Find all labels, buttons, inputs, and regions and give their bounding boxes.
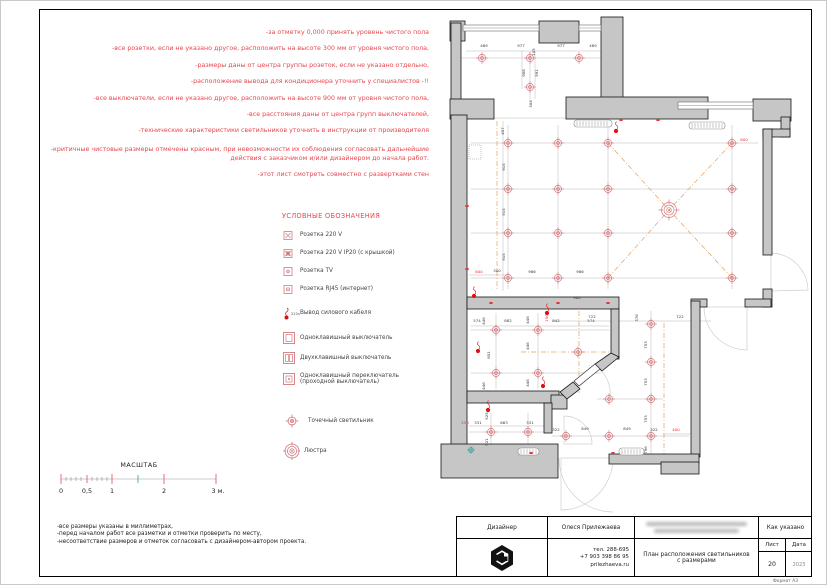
legend-title: УСЛОВНЫЕ ОБОЗНАЧЕНИЯ — [282, 212, 442, 220]
client-info-blurred — [634, 517, 758, 538]
switch-2gang-icon — [282, 351, 300, 365]
legend-item: Розетка 220 V IP20 (с крышкой) — [282, 248, 442, 259]
scale-bar: МАСШТАБ 0 0,5 1 2 3 м. — [51, 461, 231, 506]
contact-mobile: +7 903 398 86 95 — [580, 554, 629, 561]
note-line: -все расстояния даны от центра групп вык… — [29, 107, 429, 123]
legend-item: Розетка TV — [282, 266, 442, 277]
contact-site[interactable]: prilezhaeva.ru — [590, 562, 629, 569]
scale-value: Как указано — [758, 517, 812, 538]
scale-label: 2 — [162, 487, 166, 495]
legend: УСЛОВНЫЕ ОБОЗНАЧЕНИЯ Розетка 220 V Розет… — [282, 212, 442, 461]
drawing-title: План расположения светильников с размера… — [634, 538, 758, 577]
socket-ip20-icon — [282, 248, 300, 259]
blurred-text-line — [646, 522, 748, 526]
note-line: -критичные чистовые размеры отмечены кра… — [29, 145, 429, 164]
note-line: -этот лист смотреть совместно с развертк… — [29, 167, 429, 183]
scale-label: 0 — [59, 487, 63, 495]
switch-1gang-icon — [282, 331, 300, 345]
legend-item: Розетка 220 V — [282, 230, 442, 241]
logo-icon — [489, 544, 515, 572]
general-notes-red: -за отметку 0,000 принять уровень чистог… — [29, 25, 429, 183]
legend-item: Одноклавишный переключатель (проходной в… — [282, 371, 432, 387]
blurred-text-line — [654, 529, 740, 533]
legend-item: Точечный светильник — [282, 413, 442, 429]
sheet-label: Лист — [758, 538, 785, 551]
switch-pass-icon — [282, 371, 300, 387]
legend-item: 220v Вывод силового кабеля — [282, 307, 442, 320]
general-notes-black: -все размеры указаны в миллиметрах,-пере… — [57, 524, 306, 546]
format-label: Формат А3 — [773, 579, 798, 584]
date-value: 2023 — [785, 551, 812, 577]
legend-item: Розетка RJ45 (интернет) — [282, 284, 442, 295]
contact-phone: тел. 288-695 — [593, 547, 629, 554]
title-block: Дизайнер Олеся Прилежаева Как указано те… — [456, 516, 812, 577]
drawing-sheet: { "page": {"format_label": "Формат А3"},… — [0, 0, 827, 585]
legend-item: Двухклавишный выключатель — [282, 351, 442, 365]
note-line: -за отметку 0,000 принять уровень чистог… — [29, 25, 429, 41]
note-line: -перед началом работ все разметки и отме… — [57, 531, 306, 538]
spotlight-icon — [282, 413, 302, 429]
legend-item: Люстра — [282, 441, 442, 461]
scale-title: МАСШТАБ — [51, 461, 227, 469]
svg-text:220v: 220v — [291, 312, 300, 316]
scale-label: 3 м. — [212, 487, 225, 495]
note-line: -все выключатели, если не указано другое… — [29, 91, 429, 107]
sheet-number: 20 — [758, 551, 785, 577]
logo — [457, 538, 547, 577]
note-line: -все размеры указаны в миллиметрах, — [57, 524, 306, 531]
note-line: -все розетки, если не указано другое, ра… — [29, 41, 429, 57]
date-label: Дата — [785, 538, 812, 551]
designer-name: Олеся Прилежаева — [547, 517, 634, 538]
note-line: -размеры даны от центра группы розеток, … — [29, 58, 429, 74]
chandelier-icon — [282, 441, 300, 461]
power-cable-icon: 220v — [282, 307, 300, 320]
note-line: -технические характеристики светильников… — [29, 123, 429, 139]
scale-label: 1 — [110, 487, 114, 495]
socket-tv-icon — [282, 266, 300, 277]
note-line: -несоответствие размеров и отметок согла… — [57, 539, 306, 546]
socket-220v-icon — [282, 230, 300, 241]
note-line: -расположение вывода для кондиционера ут… — [29, 74, 429, 90]
legend-item: Одноклавишный выключатель — [282, 331, 442, 345]
scale-label: 0,5 — [82, 487, 92, 495]
socket-rj45-icon — [282, 284, 300, 295]
scale-ruler — [51, 469, 231, 491]
designer-contacts: тел. 288-695 +7 903 398 86 95 prilezhaev… — [547, 538, 634, 577]
designer-label: Дизайнер — [457, 517, 547, 538]
